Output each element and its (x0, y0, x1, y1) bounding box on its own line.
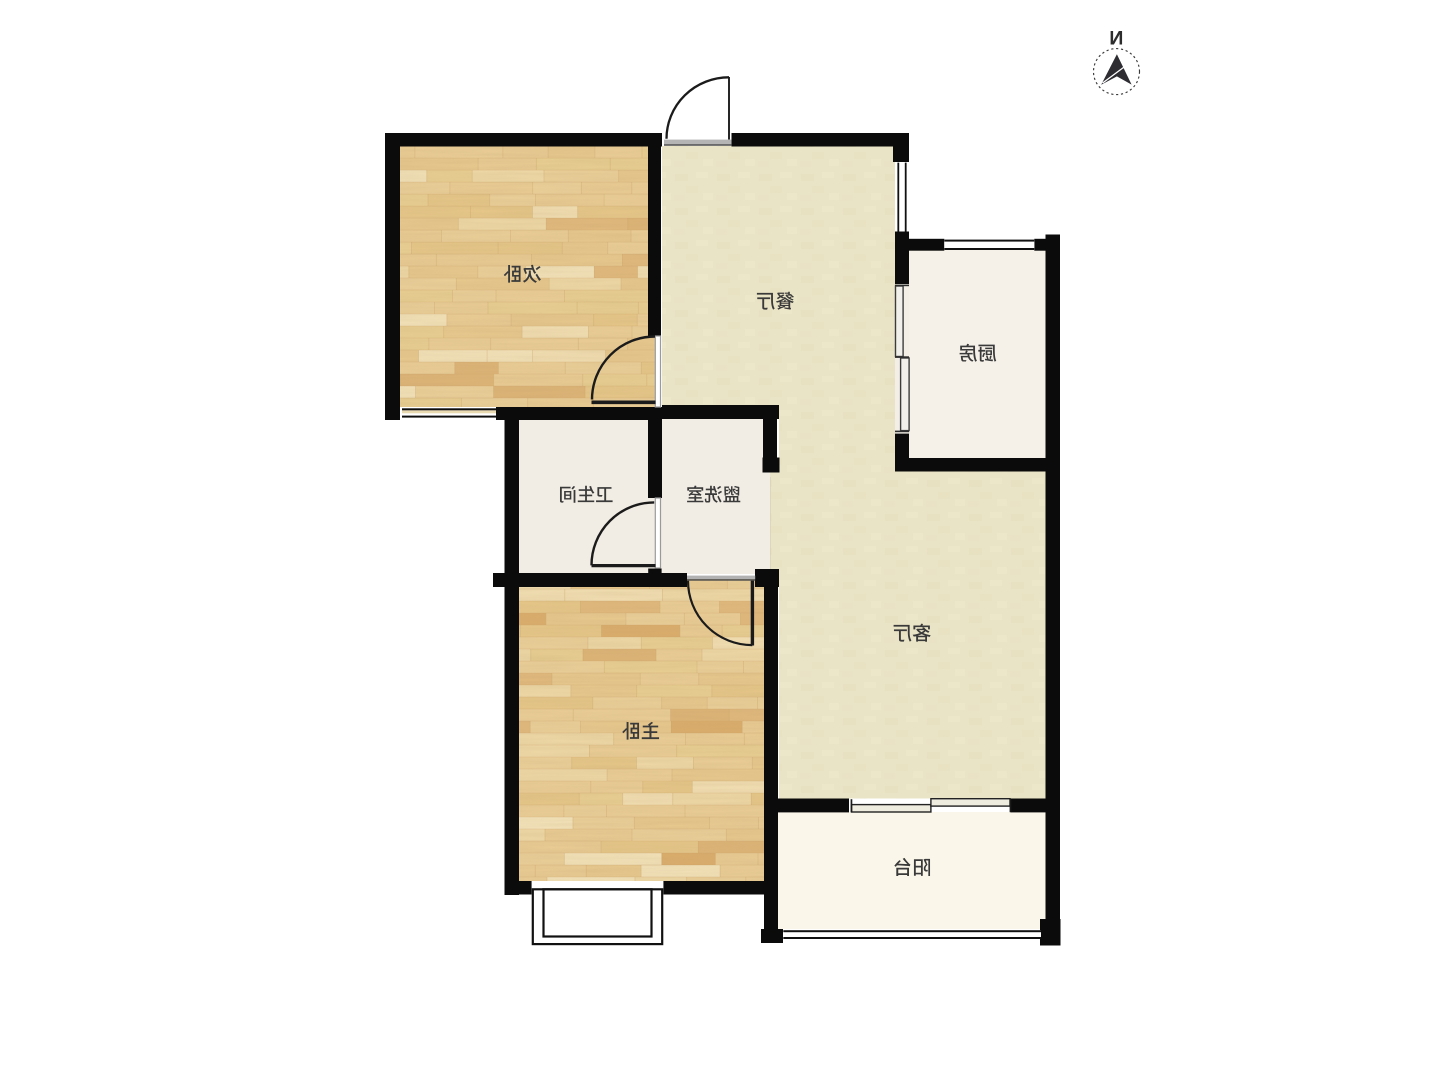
svg-text:N: N (1109, 28, 1123, 50)
